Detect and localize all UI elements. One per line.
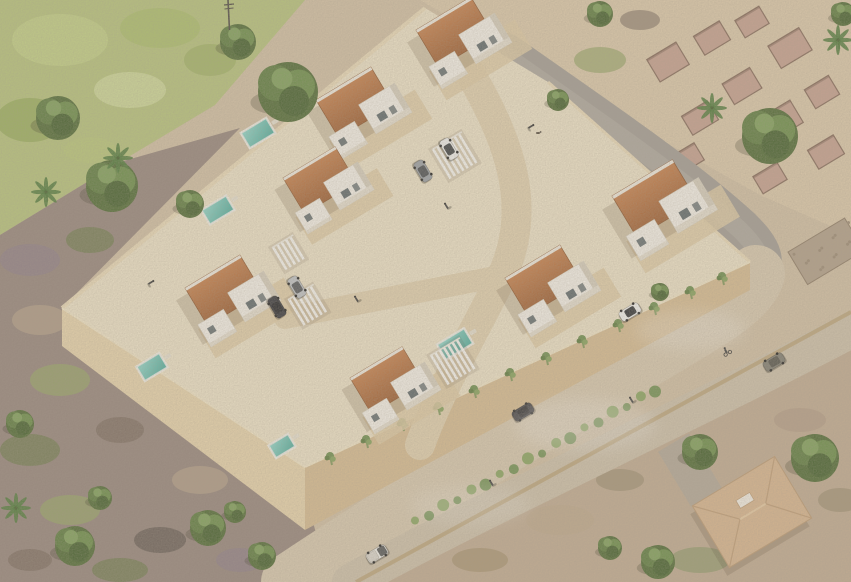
aerial-villa-render xyxy=(0,0,851,582)
render-stage xyxy=(0,0,851,582)
film-grain-overlay xyxy=(0,0,851,582)
